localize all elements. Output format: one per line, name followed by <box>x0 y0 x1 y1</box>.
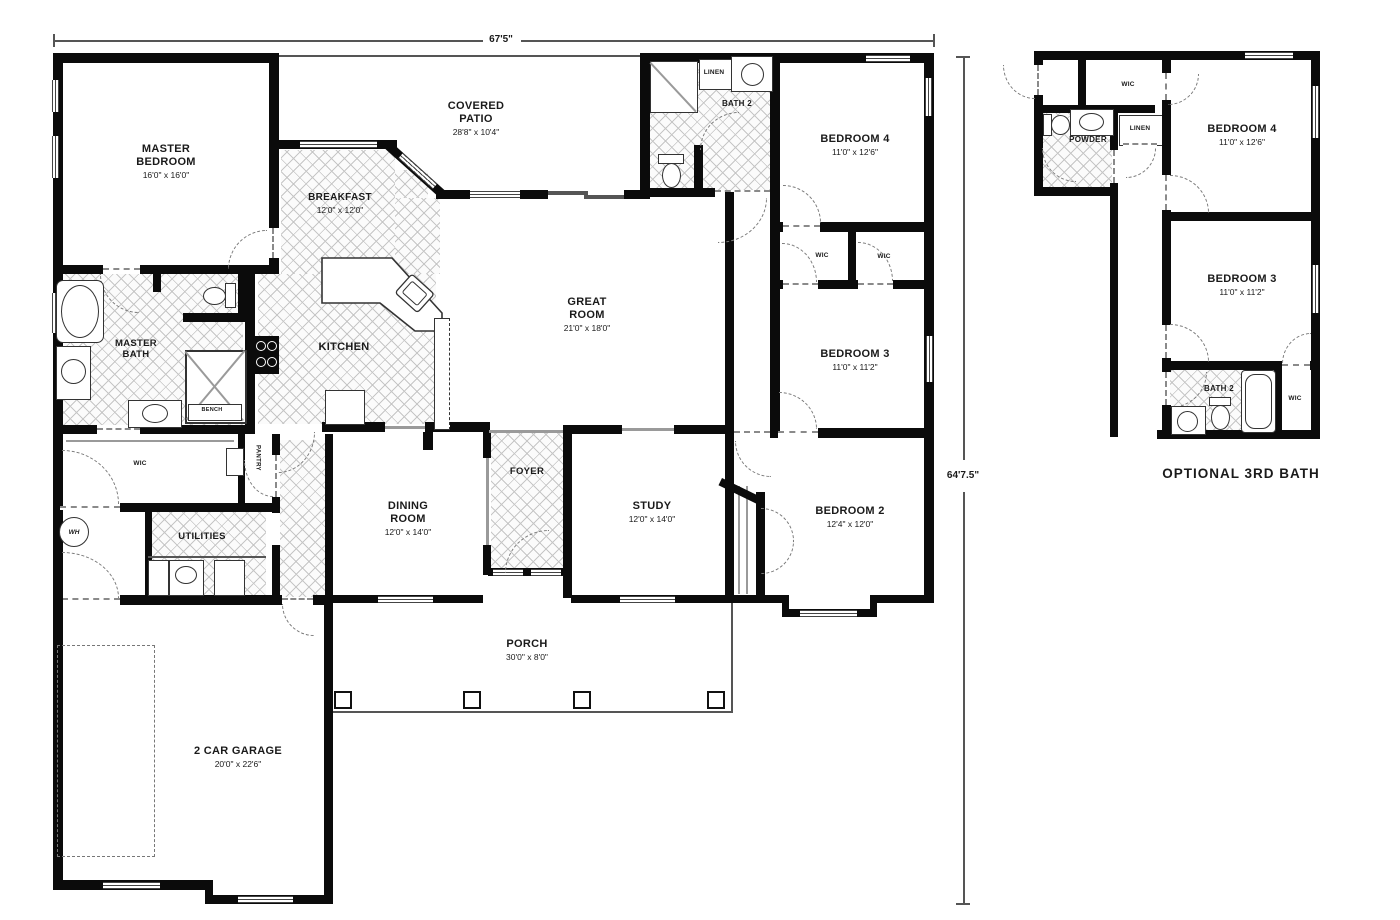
optional-plan-caption: OPTIONAL 3RD BATH <box>1151 466 1331 481</box>
room-label-pantry: PANTRY <box>250 445 264 471</box>
wall <box>848 232 856 287</box>
wall <box>483 432 491 458</box>
wall <box>770 53 780 433</box>
wall <box>818 280 858 289</box>
door-opening <box>715 190 770 194</box>
wall <box>120 503 273 512</box>
room-label-porch: PORCH 30'0" x 8'0" <box>487 638 567 662</box>
door-opening <box>97 428 140 432</box>
room-label-bedroom3: BEDROOM 3 11'0" x 11'2" <box>805 348 905 372</box>
wall <box>694 145 703 192</box>
porch-column <box>463 691 481 709</box>
door-opening <box>858 283 893 287</box>
dimension-line <box>963 57 965 460</box>
sliding-door <box>584 195 624 199</box>
wall <box>700 595 788 603</box>
door-opening <box>272 228 276 258</box>
door-opening <box>1165 175 1169 210</box>
door-arc <box>782 243 817 282</box>
room-label-linen: LINEN <box>1120 125 1160 133</box>
door-arc <box>1126 148 1156 178</box>
wall <box>53 503 60 512</box>
counter <box>148 556 266 558</box>
wall <box>770 428 778 438</box>
floor-plan: 67'5" 64'7.5" <box>0 0 1400 920</box>
door-arc <box>779 392 817 429</box>
wall <box>640 53 650 199</box>
wall <box>1078 51 1086 111</box>
stove <box>253 336 279 374</box>
room-label-wic: WIC <box>1275 395 1315 403</box>
wall <box>272 497 280 513</box>
burner-icon <box>267 357 277 367</box>
door-arc <box>761 508 794 541</box>
kitchen-counter <box>434 318 450 430</box>
door-arc <box>1282 333 1311 364</box>
door-opening <box>1113 150 1117 183</box>
burner-icon <box>256 357 266 367</box>
window <box>300 141 377 148</box>
door-arc <box>1170 324 1209 362</box>
cased-opening <box>486 458 489 545</box>
door-opening <box>734 431 770 435</box>
closet-shelf <box>746 486 748 594</box>
sliding-door <box>548 191 588 195</box>
door-arc <box>62 552 119 598</box>
room-label-breakfast: BREAKFAST 12'0" x 12'0" <box>288 192 392 215</box>
wall <box>563 432 572 598</box>
window <box>238 896 293 903</box>
porch-column <box>707 691 725 709</box>
cabinet <box>148 560 169 596</box>
room-label-bedroom3: BEDROOM 3 11'0" x 11'2" <box>1192 273 1292 297</box>
room-label-kitchen: KITCHEN <box>304 341 384 354</box>
door-opening <box>1037 65 1041 95</box>
toilet <box>662 163 681 188</box>
dimension-tick <box>956 56 970 58</box>
door-arc <box>62 450 119 504</box>
wall <box>893 280 934 289</box>
window <box>103 882 160 889</box>
sink <box>175 566 197 584</box>
sink <box>1079 113 1104 131</box>
door-arc <box>1168 74 1199 105</box>
toilet-tank <box>225 283 236 308</box>
wall <box>324 595 333 904</box>
door-arc <box>783 185 821 223</box>
room-label-linen: LINEN <box>694 69 734 77</box>
wall <box>1162 51 1171 73</box>
toilet <box>203 287 226 305</box>
room-label-foyer: FOYER <box>497 466 557 477</box>
wall <box>924 53 934 603</box>
wall <box>153 274 161 292</box>
wall <box>818 428 934 438</box>
window <box>378 596 433 603</box>
wall <box>1034 51 1043 65</box>
wall <box>1110 183 1118 437</box>
room-label-wic: WIC <box>1108 81 1148 89</box>
wall <box>1162 100 1171 175</box>
porch-edge <box>333 711 733 713</box>
window <box>52 136 59 178</box>
room-label-study: STUDY 12'0" x 14'0" <box>602 500 702 524</box>
bathtub-basin <box>61 285 99 338</box>
door-opening <box>783 225 820 229</box>
sink <box>1177 411 1198 432</box>
room-label-covered-patio: COVERED PATIO 28'8" x 10'4" <box>441 100 511 137</box>
door-opening <box>1123 143 1157 147</box>
window <box>925 78 932 116</box>
wall <box>870 595 934 603</box>
patio-edge <box>279 55 648 57</box>
wall <box>520 190 548 199</box>
room-label-garage: 2 CAR GARAGE 20'0" x 22'6" <box>168 745 308 769</box>
wall <box>640 188 715 197</box>
dimension-tick <box>956 903 970 905</box>
burner-icon <box>256 341 266 351</box>
closet-shelf <box>738 486 740 594</box>
toilet <box>1051 115 1070 135</box>
kitchen-island <box>320 253 452 335</box>
window <box>620 596 675 603</box>
door-arc <box>282 604 314 636</box>
door-opening <box>62 598 120 602</box>
bathtub-basin <box>1245 374 1272 429</box>
window <box>1312 86 1319 138</box>
wall <box>325 434 333 598</box>
door-opening <box>103 268 140 272</box>
room-label-dining: DINING ROOM 12'0" x 14'0" <box>378 500 438 537</box>
garage-storage-outline <box>57 645 155 857</box>
room-label-wic: WIC <box>802 252 842 260</box>
porch-column <box>334 691 352 709</box>
dimension-height-label: 64'7.5" <box>933 470 993 481</box>
window <box>800 610 857 617</box>
room-label-master-wic: WIC <box>120 460 160 468</box>
door-opening <box>778 431 818 435</box>
wall <box>770 222 783 232</box>
room-label-bedroom2: BEDROOM 2 12'4" x 12'0" <box>800 505 900 529</box>
dimension-line <box>53 40 483 42</box>
dimension-width-label: 67'5" <box>470 34 532 45</box>
wall <box>120 595 282 605</box>
cased-opening <box>385 426 425 429</box>
door-opening <box>60 506 120 510</box>
wall <box>183 313 245 322</box>
window <box>866 55 910 62</box>
wall <box>53 53 279 63</box>
sink <box>61 359 86 384</box>
wall <box>1162 212 1320 221</box>
room-label-master-bath: MASTER BATH <box>106 338 166 360</box>
porch-column <box>573 691 591 709</box>
refrigerator <box>325 390 365 425</box>
sink <box>741 63 764 86</box>
room-label-bedroom4: BEDROOM 4 11'0" x 12'6" <box>1192 123 1292 147</box>
room-label-bedroom4: BEDROOM 4 11'0" x 12'6" <box>805 133 905 157</box>
cased-opening <box>489 430 563 433</box>
window <box>470 191 520 198</box>
room-label-master-bedroom: MASTER BEDROOM 16'0" x 16'0" <box>118 143 214 180</box>
door-opening <box>1282 364 1310 368</box>
window <box>926 336 933 382</box>
wall <box>423 432 433 450</box>
door-arc <box>718 198 767 243</box>
door-arc <box>761 541 794 574</box>
closet-shelf <box>226 448 244 476</box>
door-arc <box>1003 65 1035 99</box>
room-label-bath2: BATH 2 <box>712 99 762 108</box>
window <box>52 80 59 112</box>
room-label-bench: BENCH <box>192 407 232 413</box>
wall <box>563 425 622 434</box>
wall <box>1162 210 1171 325</box>
window <box>1245 52 1293 59</box>
room-label-utilities: UTILITIES <box>162 531 242 542</box>
door-opening <box>783 283 818 287</box>
burner-icon <box>267 341 277 351</box>
room-label-wic: WIC <box>864 253 904 261</box>
room-label-bath2: BATH 2 <box>1194 384 1244 393</box>
wall <box>820 222 934 232</box>
door-opening <box>1165 372 1169 405</box>
cased-opening <box>622 428 674 431</box>
door-arc <box>735 441 771 477</box>
closet-shelf <box>66 440 234 442</box>
door-arc <box>228 230 267 269</box>
wall <box>272 545 280 598</box>
wall <box>436 190 470 199</box>
door-arc <box>1170 175 1209 213</box>
door-arc <box>858 242 893 281</box>
toilet <box>1211 405 1230 430</box>
dimension-tick <box>53 34 55 47</box>
dimension-tick <box>933 34 935 47</box>
wall <box>674 425 733 434</box>
wall <box>1034 187 1118 196</box>
door-opening <box>282 598 313 602</box>
porch-edge <box>731 603 733 713</box>
wall <box>725 192 734 598</box>
room-label-great-room: GREAT ROOM 21'0" x 18'0" <box>557 296 617 333</box>
sink <box>142 404 168 423</box>
window <box>1312 265 1319 313</box>
room-label-powder: POWDER <box>1063 135 1113 144</box>
water-heater: WH <box>59 517 89 547</box>
dimension-line <box>521 40 934 42</box>
washer-dryer <box>214 560 245 596</box>
wall <box>1162 361 1282 370</box>
door-opening <box>1165 325 1169 358</box>
dimension-line <box>963 492 965 904</box>
